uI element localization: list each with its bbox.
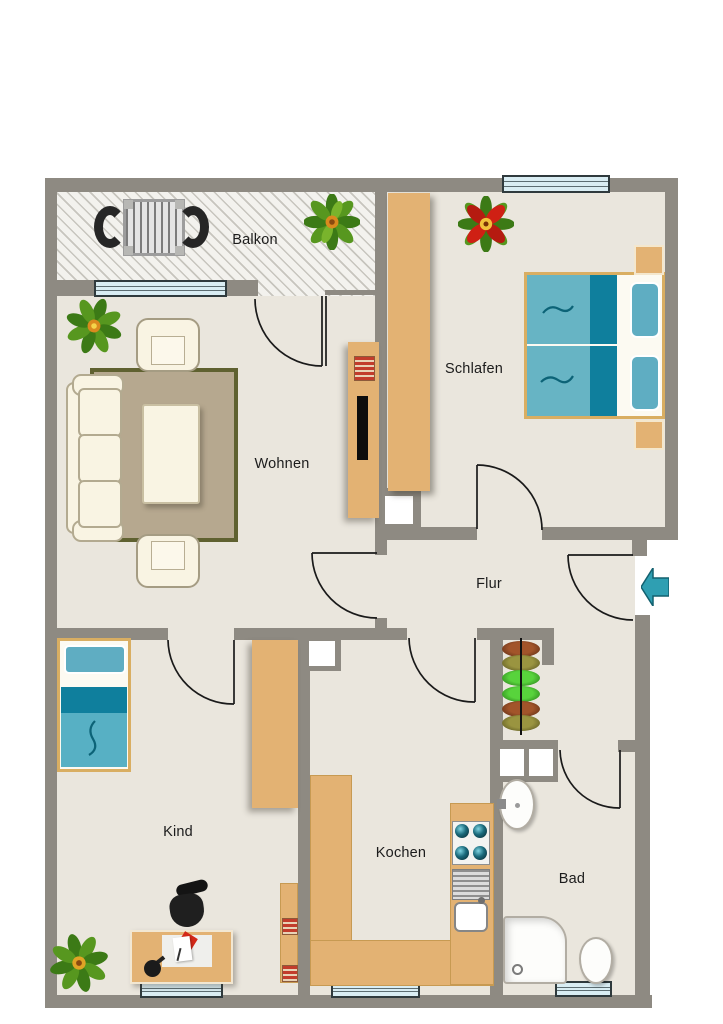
wall [665,178,678,540]
double-bed [524,272,665,419]
armchair [136,318,200,372]
washbasin [499,779,535,830]
balcony-chair [177,206,209,248]
sink-bowl [454,902,488,932]
books [282,918,298,935]
shower [503,916,567,984]
room-label-kochen: Kochen [376,845,426,861]
books [282,965,298,982]
desk-chair [164,880,212,936]
duct-shaft [309,641,335,666]
floor-plan: Balkon Wohnen Schlafen Flur Kind Kochen … [0,0,723,1024]
balcony-sill [325,290,375,295]
pillow [630,355,660,411]
table-leg [124,246,133,255]
basin-tap [497,799,506,809]
kitchen-sink [452,869,490,935]
nightstand [634,245,664,275]
pillow [630,282,660,338]
sofa-cushion [78,480,122,528]
books [354,356,375,381]
window-bedroom [502,175,610,193]
entrance-arrow-icon [641,568,669,606]
room-label-wohnen: Wohnen [255,456,310,472]
desk-lamp [144,960,161,977]
wall [632,538,647,556]
desk [130,930,233,984]
blanket-fold [590,275,617,344]
sofa-cushion [78,434,122,483]
table-leg [175,200,184,209]
wall [635,615,650,997]
bookshelf [280,883,298,983]
blanket [527,346,590,416]
paper-sheet [173,936,193,962]
wardrobe [388,193,430,491]
armchair-seat [151,541,185,570]
pillow [64,645,126,674]
wardrobe [252,640,298,808]
sofa-cushion [78,388,122,437]
room-label-schlafen: Schlafen [445,361,503,377]
window-balcony [94,280,227,297]
dining-table [123,199,185,256]
plant-shelf-rail [520,638,522,735]
blanket [61,687,127,767]
wall [490,628,554,640]
room-label-balkon: Balkon [232,232,278,248]
wall [298,628,310,1008]
shower-drain [512,964,523,975]
basin-drain [515,803,520,808]
room-label-bad: Bad [559,871,585,887]
plant-icon [66,298,122,354]
tv [357,396,368,460]
blanket [527,275,590,344]
mattress [527,275,662,344]
duct-shaft [529,749,553,776]
wall [618,740,637,752]
armchair [136,534,200,588]
nightstand [634,420,664,450]
balcony-chair [94,206,126,248]
room-label-flur: Flur [476,576,502,592]
wall [45,280,94,296]
duct-shaft [500,749,524,776]
wall [45,178,57,1008]
blanket-fold [590,346,617,416]
flower-icon [458,196,514,252]
armchair-seat [151,336,185,365]
room-label-kind: Kind [163,824,193,840]
wall [542,640,554,665]
table-leg [124,200,133,209]
wall [227,280,258,296]
stove [452,821,490,865]
coffee-table [142,404,200,504]
duct-shaft [385,496,413,524]
table-leg [175,246,184,255]
drainboard [452,869,490,900]
plant-icon [304,194,360,250]
faucet [478,897,485,904]
window-child-room [140,982,223,998]
single-bed [57,638,131,772]
sofa [66,374,124,538]
plant-icon [50,934,108,992]
mattress [527,346,662,416]
